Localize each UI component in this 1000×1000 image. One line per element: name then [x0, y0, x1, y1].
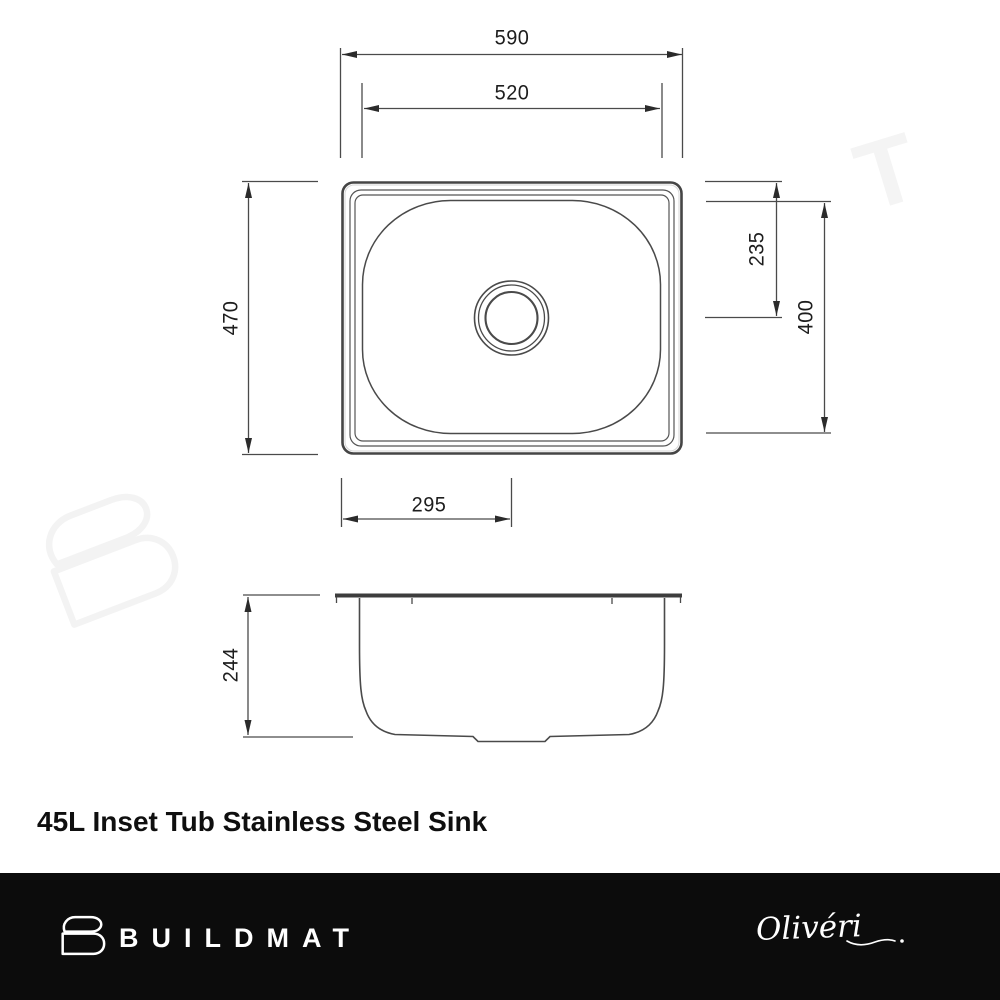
dim-label-overall-width: 590 [495, 28, 530, 49]
arrow-400-bottom [821, 417, 828, 432]
dim-label-drain-offset: 235 [747, 232, 768, 267]
page-title: 45L Inset Tub Stainless Steel Sink [37, 806, 487, 838]
sink-rim-inner-line-1 [350, 190, 674, 446]
arrow-520-left [364, 105, 379, 112]
sink-rim-inner-line-2 [355, 195, 669, 441]
drain-inner-ring-icon [486, 292, 538, 344]
arrow-244-top [245, 597, 252, 612]
arrow-590-left [342, 51, 357, 58]
tub-profile-outline [360, 598, 665, 742]
drain-middle-ring-icon [479, 285, 545, 351]
sink-side-view [335, 596, 682, 742]
arrow-235-top [773, 183, 780, 198]
arrow-520-right [645, 105, 660, 112]
brand-name: BUILDMAT [119, 925, 362, 952]
dimension-lines [242, 48, 831, 737]
signature-swash-line [847, 940, 895, 945]
arrow-400-top [821, 203, 828, 218]
sink-drawing [0, 0, 1000, 1000]
signature-swash-dot [900, 939, 904, 943]
arrow-295-right [495, 516, 510, 523]
dimension-arrowheads [245, 51, 829, 735]
arrow-590-right [667, 51, 682, 58]
sink-rim-bevel [345, 185, 679, 451]
dim-label-bowl-depth: 400 [796, 300, 817, 335]
dim-label-rim-width: 520 [495, 83, 530, 104]
signature-swash-icon [845, 933, 907, 949]
arrow-470-top [245, 183, 252, 198]
dim-label-drain-from-left: 295 [412, 495, 447, 516]
spec-sheet: T [0, 0, 1000, 1000]
bowl-outline [363, 201, 661, 434]
brand-logo-top-fold [64, 917, 101, 931]
arrow-295-left [343, 516, 358, 523]
arrow-235-bottom [773, 301, 780, 316]
sink-top-view [343, 183, 682, 454]
arrow-470-bottom [245, 438, 252, 453]
arrow-244-bottom [245, 720, 252, 735]
buildmat-logo-icon [54, 914, 108, 957]
brand-logo-bottom-fold [63, 934, 104, 954]
dim-label-overall-depth: 470 [221, 301, 242, 336]
dim-label-side-depth: 244 [221, 648, 242, 683]
